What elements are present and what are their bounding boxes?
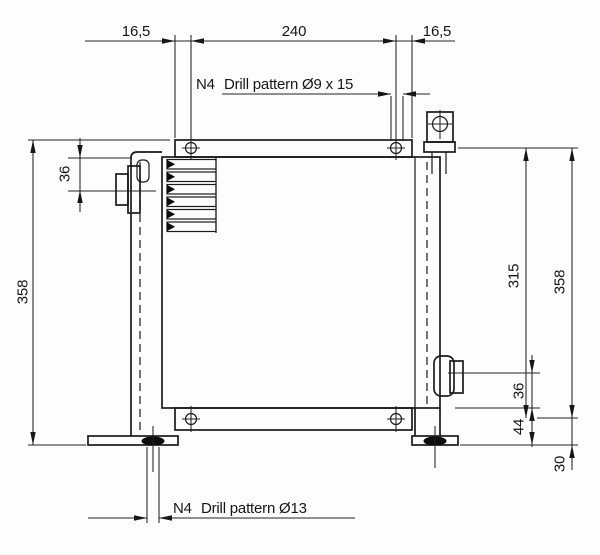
- arrowhead: [569, 445, 574, 458]
- dim-hole-spacing-vertical: 315: [505, 264, 522, 288]
- fin-end-mark: [167, 161, 174, 169]
- dimension-lines: [33, 41, 572, 518]
- right-port-fitting: [434, 356, 463, 396]
- oil-cooler-dimension-drawing: 16,5 240 16,5 36 358 315 358 36 44 30 N4…: [0, 0, 600, 555]
- arrowhead: [529, 432, 534, 445]
- fin-end-mark: [167, 186, 174, 194]
- fin-pack: [167, 158, 216, 233]
- arrowhead: [159, 515, 172, 520]
- arrowhead: [529, 408, 534, 421]
- dimension-arrows: [30, 38, 574, 520]
- fin-end-mark: [167, 223, 174, 231]
- mounting-foot-left: [88, 426, 178, 472]
- arrowhead: [569, 405, 574, 418]
- drill-pattern-callout-bottom: N4 Drill pattern Ø13: [173, 500, 307, 517]
- fin-end-mark: [167, 198, 174, 206]
- dim-top-left-margin: 16,5: [122, 23, 150, 40]
- arrowhead: [30, 140, 35, 153]
- callout-top-prefix: N4: [196, 76, 215, 93]
- arrowhead: [403, 91, 416, 96]
- dim-left-port-offset: 36: [56, 166, 73, 182]
- top-mounting-flange: [175, 140, 412, 157]
- arrowhead: [569, 148, 574, 161]
- flange-hole-bottom-left: [182, 406, 200, 432]
- dim-top-right-margin: 16,5: [423, 23, 451, 40]
- callout-bottom-label: Drill pattern Ø13: [201, 500, 307, 517]
- arrowhead: [77, 190, 82, 203]
- fin-end-mark: [167, 211, 174, 219]
- flange-hole-bottom-right: [387, 406, 405, 432]
- callout-top-label: Drill pattern Ø9 x 15: [224, 76, 353, 93]
- dim-overall-height-right: 358: [551, 270, 568, 294]
- arrowhead: [162, 38, 175, 43]
- left-bracket-notch: [137, 160, 149, 182]
- arrowhead: [30, 432, 35, 445]
- dim-hole-spacing-horizontal: 240: [282, 23, 306, 40]
- mounting-foot-right: [412, 408, 458, 468]
- arrowhead: [523, 148, 528, 161]
- cooler-body: [162, 157, 440, 408]
- dim-right-port-offset: 36: [510, 383, 527, 399]
- dim-overall-height-left: 358: [14, 280, 31, 304]
- dim-foot-height: 44: [510, 419, 527, 435]
- arrowhead: [529, 360, 534, 373]
- fin-end-mark: [167, 173, 174, 181]
- technical-drawing-page: 16,5 240 16,5 36 358 315 358 36 44 30 N4…: [0, 0, 600, 555]
- dim-hole-to-foot-bottom: 30: [551, 456, 568, 472]
- drill-pattern-callout-top: N4 Drill pattern Ø9 x 15: [196, 76, 353, 93]
- cooler-assembly: [88, 110, 463, 472]
- arrowhead: [134, 515, 147, 520]
- extension-lines: [28, 35, 578, 523]
- arrowhead: [383, 38, 396, 43]
- arrowhead: [77, 145, 82, 158]
- arrowhead: [378, 91, 391, 96]
- arrowhead: [523, 405, 528, 418]
- left-side-bracket: [131, 152, 162, 436]
- callout-bottom-prefix: N4: [173, 500, 192, 517]
- bottom-mounting-flange: [175, 408, 412, 430]
- arrowhead: [191, 38, 204, 43]
